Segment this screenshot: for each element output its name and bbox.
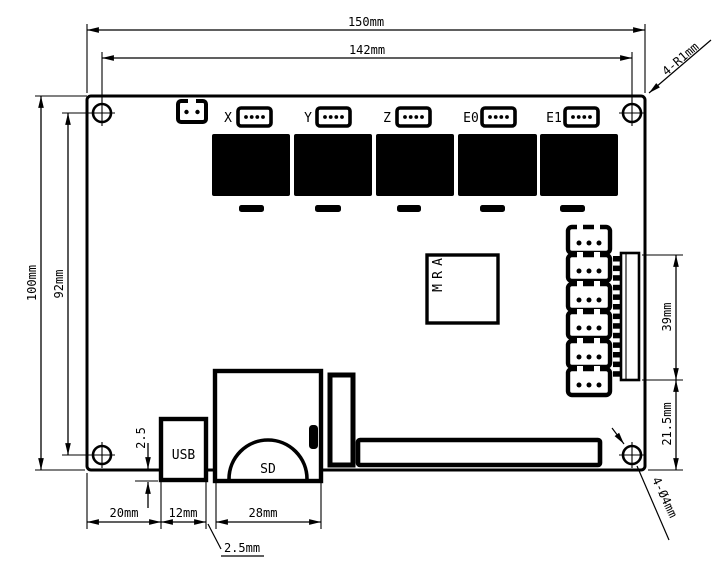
driver-label-z: Z — [383, 111, 391, 126]
driver-connector-e0 — [482, 108, 515, 126]
dim-label-usb-width: 12mm — [169, 506, 198, 520]
dim-label-hole-span-width: 142mm — [349, 43, 385, 57]
driver-label-e0: E0 — [463, 111, 479, 126]
dim-label-overall-width: 150mm — [348, 15, 384, 29]
arm-chip-letter: A — [431, 258, 446, 266]
dim-label-corner-radius: 4-R1mm — [659, 40, 701, 79]
driver-socket-e1 — [540, 134, 618, 196]
driver-jumper-x — [239, 205, 264, 212]
driver-connector-z — [397, 108, 430, 126]
dim-label-hole-span-height: 92mm — [52, 270, 66, 299]
endstop-connector-6 — [568, 366, 610, 395]
driver-label-y: Y — [304, 111, 312, 126]
endstop-connectors — [568, 224, 610, 395]
endstop-connector-1 — [568, 224, 610, 253]
endstop-connector-4 — [568, 309, 610, 338]
usb-port: USB — [161, 419, 206, 480]
endstop-connector-3 — [568, 281, 610, 310]
driver-socket-z — [376, 134, 454, 196]
power-connector-2pin — [178, 98, 206, 122]
driver-socket-x — [212, 134, 290, 196]
arm-chip-letter: M — [431, 284, 446, 292]
aux-vertical-connector — [330, 375, 353, 465]
driver-label-x: X — [224, 111, 232, 126]
driver-connector-x — [238, 108, 271, 126]
pcb-dimension-drawing: 150mm 142mm 100mm 92mm 20mm 12mm 28mm 2.… — [0, 0, 720, 584]
dim-label-pin-header-to-edge: 21.5mm — [660, 402, 674, 445]
endstop-connector-5 — [568, 338, 610, 367]
dim-label-usb-sd-gap: 2.5mm — [224, 541, 260, 555]
driver-connector-y — [317, 108, 350, 126]
endstop-connector-2 — [568, 252, 610, 281]
expansion-header — [358, 440, 600, 465]
driver-jumper-y — [315, 205, 341, 212]
dim-label-hole-dia: 4-Ø4mm — [649, 475, 680, 520]
dim-label-pin-header-length: 39mm — [660, 303, 674, 332]
driver-socket-y — [294, 134, 372, 196]
dim-label-overall-height: 100mm — [25, 265, 39, 301]
sd-detect-tab — [309, 425, 318, 449]
dim-label-left-to-usb: 20mm — [110, 506, 139, 520]
usb-label: USB — [172, 448, 196, 463]
driver-jumper-e1 — [560, 205, 585, 212]
driver-socket-e0 — [458, 134, 537, 196]
arm-chip-letter: R — [431, 271, 446, 279]
sd-label: SD — [260, 462, 276, 477]
arm-chip-label: ARM — [431, 258, 446, 292]
leader-usb-sd-gap — [208, 524, 221, 549]
driver-jumper-e0 — [480, 205, 505, 212]
driver-connector-e1 — [565, 108, 598, 126]
dim-label-usb-protrusion: 2.5 — [134, 427, 148, 449]
sd-card-slot: SD — [215, 371, 321, 481]
arm-chip: ARM — [427, 255, 498, 323]
dim-label-sd-width: 28mm — [249, 506, 278, 520]
drawing-canvas: 150mm 142mm 100mm 92mm 20mm 12mm 28mm 2.… — [0, 0, 720, 584]
pin-header-body — [621, 253, 639, 380]
driver-jumper-z — [397, 205, 421, 212]
driver-label-e1: E1 — [546, 111, 562, 126]
